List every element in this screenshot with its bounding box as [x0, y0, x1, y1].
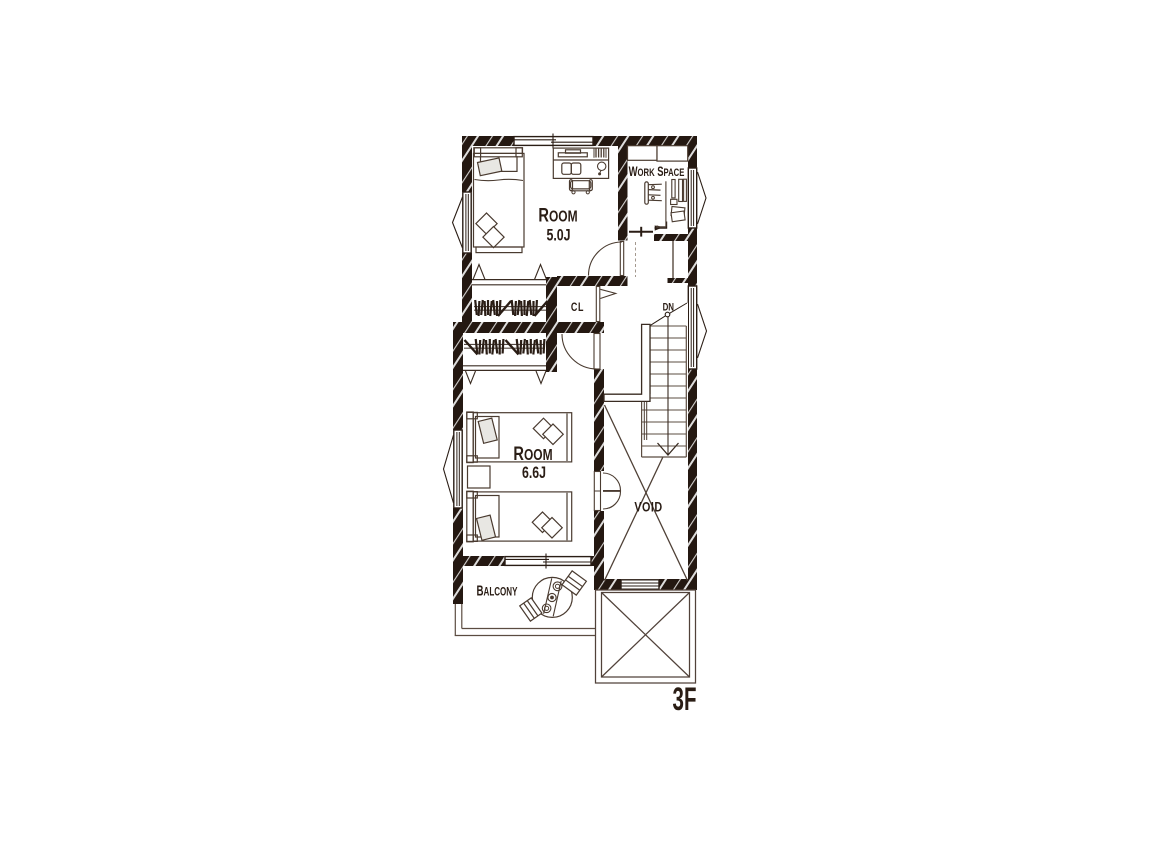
svg-text:DN: DN [663, 301, 675, 314]
svg-text:3F: 3F [673, 681, 697, 717]
svg-text:ROOM: ROOM [513, 442, 552, 465]
svg-text:5.0J: 5.0J [546, 227, 570, 245]
svg-text:VOID: VOID [634, 499, 662, 514]
svg-text:6.6J: 6.6J [522, 464, 546, 482]
svg-text:BALCONY: BALCONY [477, 583, 518, 599]
svg-text:WORK SPACE: WORK SPACE [629, 164, 685, 179]
svg-text:CL: CL [571, 302, 584, 314]
svg-text:ROOM: ROOM [538, 203, 577, 226]
